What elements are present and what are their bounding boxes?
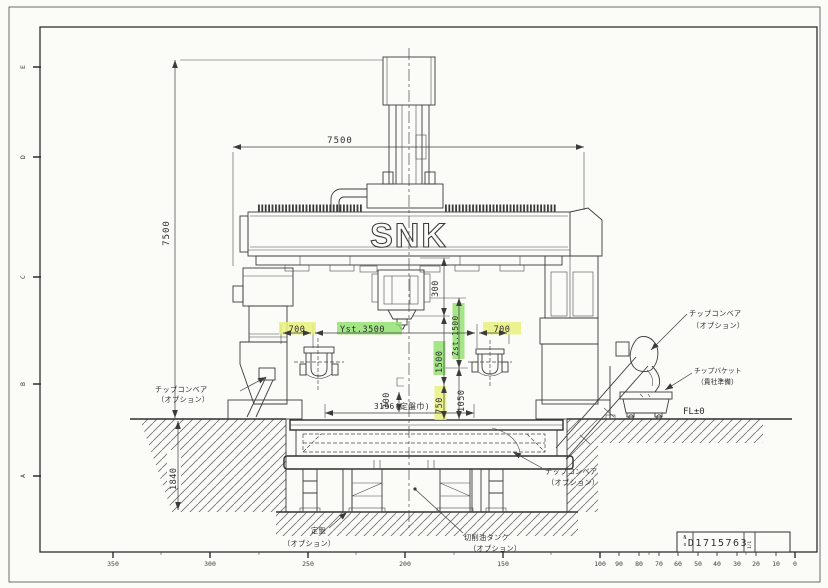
ruler-number: 20 bbox=[752, 560, 760, 568]
label-chip-conveyor-left: チップコンベア bbox=[155, 385, 207, 394]
ruler-number: 50 bbox=[694, 560, 702, 568]
dim-text-zst: Zst.1500 bbox=[451, 315, 460, 356]
dim-overall-height: 7500 bbox=[162, 60, 383, 418]
dim-stack-z: Zst.1500 1050 bbox=[451, 298, 467, 419]
label-chip-conveyor-left-option: （オプション） bbox=[157, 395, 209, 404]
title-block: N o D1715763 1/1 bbox=[677, 532, 790, 552]
label-coolant-tank: 切削油タンク bbox=[464, 533, 509, 542]
dim-platen: 3196(定盤巾) 300 bbox=[325, 378, 474, 418]
ruler-number: 70 bbox=[655, 560, 663, 568]
chip-bucket bbox=[620, 392, 672, 419]
label-chip-bucket: チップバケット bbox=[694, 367, 742, 375]
ruler-number: 40 bbox=[713, 560, 721, 568]
ruler-numbers: 350 300 250 200 150 100 90 80 70 60 50 4… bbox=[107, 560, 797, 568]
label-chip-conveyor-right-option: （オプション） bbox=[692, 321, 744, 330]
title-sheet-number: 1/1 bbox=[747, 541, 753, 549]
ruler-number: 150 bbox=[497, 560, 509, 568]
tool-holder-right bbox=[468, 340, 512, 388]
zone-letter: B bbox=[19, 382, 27, 386]
ruler-number: 80 bbox=[635, 560, 643, 568]
ruler-number: 30 bbox=[733, 560, 741, 568]
title-no-letter-bottom: o bbox=[684, 543, 687, 548]
drawing-number: D1715763 bbox=[688, 538, 748, 549]
spindle-head bbox=[360, 266, 440, 329]
dim-text-700-right: 700 bbox=[494, 325, 511, 335]
dim-text-300: 300 bbox=[431, 280, 441, 297]
dim-text-1500: 1500 bbox=[435, 351, 445, 373]
machine-bed bbox=[284, 420, 573, 469]
ruler-number: 90 bbox=[615, 560, 623, 568]
zone-letter: D bbox=[19, 155, 27, 159]
dim-text-750: 750 bbox=[435, 397, 445, 414]
ruler-number: 100 bbox=[594, 560, 606, 568]
dim-text-700-left: 700 bbox=[289, 325, 306, 335]
ruler-number: 350 bbox=[107, 560, 119, 568]
zone-letter: E bbox=[19, 65, 27, 69]
label-chip-conveyor-pit: チップコンベア bbox=[545, 467, 597, 476]
ruler-number: 10 bbox=[772, 560, 780, 568]
pit-supports bbox=[300, 469, 506, 512]
label-chip-conveyor-right: チップコンベア bbox=[689, 309, 741, 318]
dim-text-7500-width: 7500 bbox=[327, 136, 353, 146]
label-chip-conveyor-pit-option: （オプション） bbox=[547, 478, 599, 487]
dim-text-7500-height: 7500 bbox=[162, 220, 172, 246]
label-surface-plate: 定盤 bbox=[311, 526, 326, 535]
label-floor-level: FL±0 bbox=[683, 407, 705, 417]
chip-conveyor-left-tail bbox=[247, 368, 275, 417]
label-chip-bucket-note: （貴社準備） bbox=[697, 377, 738, 386]
ruler-number: 250 bbox=[302, 560, 314, 568]
right-column bbox=[536, 256, 610, 419]
label-surface-plate-option: （オプション） bbox=[283, 539, 335, 548]
ruler-number: 300 bbox=[204, 560, 216, 568]
sheet-border: E D C B A 350 300 250 200 150 100 90 80 … bbox=[9, 7, 820, 582]
dim-text-1050: 1050 bbox=[457, 390, 467, 412]
title-no-letter-top: N bbox=[684, 535, 687, 541]
zone-letter: A bbox=[19, 474, 27, 478]
ruler-number: 200 bbox=[399, 560, 411, 568]
ram-and-top-column bbox=[331, 48, 443, 530]
dim-text-yst: Yst.3500 bbox=[340, 325, 385, 335]
label-coolant-tank-option: （オプション） bbox=[469, 544, 521, 553]
ground-and-pit bbox=[130, 419, 792, 536]
drawing-canvas: E D C B A 350 300 250 200 150 100 90 80 … bbox=[0, 0, 828, 588]
dim-y-axis: 700 Yst.3500 700 bbox=[279, 322, 521, 348]
ruler-number: 0 bbox=[793, 560, 797, 568]
tool-holder-left bbox=[294, 338, 344, 392]
ruler-number: 60 bbox=[674, 560, 682, 568]
drawing-sheet: E D C B A 350 300 250 200 150 100 90 80 … bbox=[0, 0, 828, 588]
dim-text-1840: 1840 bbox=[169, 468, 179, 490]
zone-letter: C bbox=[19, 275, 27, 279]
dim-text-small-300: 300 bbox=[382, 392, 392, 409]
crossrail: SNK bbox=[240, 208, 602, 271]
